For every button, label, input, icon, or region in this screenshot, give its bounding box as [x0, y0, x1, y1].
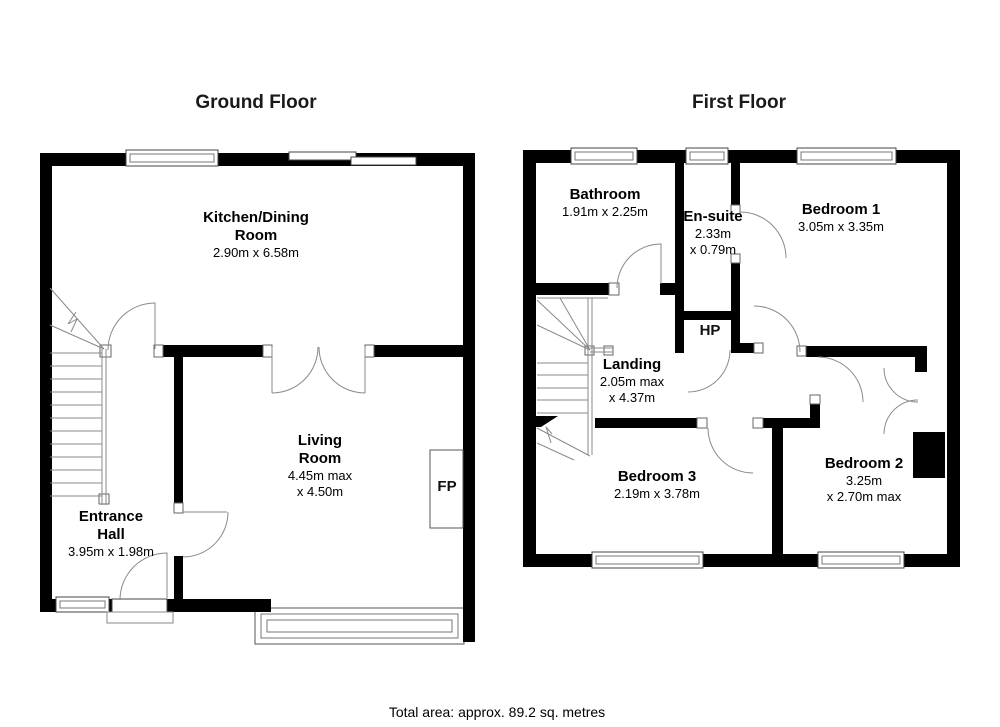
ff-jamb-bedroom2-door [810, 395, 820, 404]
hall-name-line2: Hall [68, 526, 154, 544]
ff-jamb-bedroom3-right [753, 418, 763, 428]
ff-stair-winders [537, 298, 590, 350]
ff-hp-door-arc [688, 350, 730, 392]
gf-french-door-right-arc [319, 347, 365, 393]
gf-hall-window [56, 597, 109, 612]
bathroom-label: Bathroom 1.91m x 2.25m [562, 186, 648, 220]
ff-chimney-breast [913, 432, 945, 478]
first-floor-title: First Floor [692, 92, 786, 114]
kitchen-name-line1: Kitchen/Dining [203, 209, 309, 227]
ff-wall-landing-bottom-east [763, 418, 817, 428]
fireplace-label: FP [437, 478, 456, 495]
hall-dims: 3.95m x 1.98m [68, 544, 154, 560]
ff-ensuite-window [686, 148, 728, 164]
living-dims-line1: 4.45m max [288, 468, 352, 484]
ff-stair-treads [537, 363, 588, 413]
ff-bedroom3-window [592, 552, 703, 568]
kitchen-label: Kitchen/Dining Room 2.90m x 6.58m [203, 209, 309, 261]
ff-jamb-bedroom1-right [797, 346, 806, 356]
ff-jamb-bedroom3-left [697, 418, 707, 428]
gf-front-door-arc [120, 553, 167, 600]
gf-kitchen-window [126, 150, 218, 166]
ff-bathroom-window [571, 148, 637, 164]
landing-dims-line2: x 4.37m [600, 390, 664, 406]
ff-wall-bedroom3-bedroom2 [772, 418, 783, 556]
bedroom2-dims-line2: x 2.70m max [825, 489, 903, 505]
bedroom3-label: Bedroom 3 2.19m x 3.78m [614, 468, 700, 502]
gf-patio-doors [255, 608, 464, 644]
ff-wall-ensuite-right-upper [731, 163, 740, 205]
ff-stairwell-wall-wedge [536, 416, 558, 427]
ff-bedroom2-door-arc [818, 357, 863, 402]
gf-outer-wall-right [463, 153, 475, 642]
gf-outer-wall-left [40, 153, 52, 612]
ff-wall-bathroom-bottom-stub [660, 283, 676, 295]
landing-label: Landing 2.05m max x 4.37m [600, 356, 664, 406]
gf-stair-treads [50, 353, 102, 496]
gf-top-window-left [289, 152, 356, 160]
gf-jamb-french-right [365, 345, 374, 357]
gf-hall-living-door-arc [183, 512, 228, 557]
ensuite-name: En-suite [683, 208, 742, 226]
ff-wall-ensuite-left [675, 163, 684, 353]
bedroom1-dims: 3.05m x 3.35m [798, 219, 884, 235]
ensuite-dims-line1: 2.33m [683, 226, 742, 242]
ff-closet-door-upper-arc [884, 368, 918, 402]
gf-top-window-right [351, 157, 416, 165]
floorplan-page: Ground Floor First Floor Kitchen/Dining … [0, 0, 1000, 727]
gf-patio-frame-outer [255, 608, 464, 644]
bedroom2-label: Bedroom 2 3.25m x 2.70m max [825, 455, 903, 505]
kitchen-dims: 2.90m x 6.58m [203, 245, 309, 261]
total-area-text: Total area: approx. 89.2 sq. metres [389, 704, 605, 720]
gf-stair-string [102, 349, 106, 505]
ff-jamb-stair-rail-right [604, 346, 613, 355]
ff-wall-bedroom1-left [740, 343, 754, 353]
ff-stair-string [588, 298, 592, 455]
entrance-hall-label: Entrance Hall 3.95m x 1.98m [68, 508, 154, 560]
gf-wall-kitchen-living-left [163, 345, 263, 357]
ff-wall-ensuite-bottom [675, 311, 740, 320]
ff-jamb-bedroom1-left [754, 343, 763, 353]
ff-jamb-stair-rail-left [585, 346, 594, 355]
ff-bedroom3-door-arc [708, 428, 753, 473]
gf-stair-break-line [68, 312, 77, 332]
bedroom1-name: Bedroom 1 [798, 201, 884, 219]
bedroom3-name: Bedroom 3 [614, 468, 700, 486]
ff-bathroom-door-arc [617, 244, 661, 288]
gf-jamb-french-left [263, 345, 272, 357]
gf-wall-hall-living-upper [174, 357, 183, 503]
ensuite-dims-line2: x 0.79m [683, 242, 742, 258]
gf-wall-kitchen-living-right [374, 345, 463, 357]
ensuite-label: En-suite 2.33m x 0.79m [683, 208, 742, 258]
bedroom1-label: Bedroom 1 3.05m x 3.35m [798, 201, 884, 235]
ff-bedroom2-window [818, 552, 904, 568]
ff-stair-break-diagonals [537, 428, 590, 460]
ff-wall-bathroom-bottom [536, 283, 609, 295]
gf-stairs [50, 288, 106, 505]
gf-french-door-left-arc [272, 347, 318, 393]
bathroom-dims: 1.91m x 2.25m [562, 204, 648, 220]
kitchen-name-line2: Room [203, 227, 309, 245]
hall-name-line1: Entrance [68, 508, 154, 526]
living-dims-line2: x 4.50m [288, 484, 352, 500]
gf-front-door-opening [112, 599, 167, 612]
ff-outer-wall-left [523, 150, 536, 567]
ff-wall-bedroom2-door-stub [810, 404, 820, 428]
living-name-line1: Living [288, 432, 352, 450]
bedroom2-dims-line1: 3.25m [825, 473, 903, 489]
bedroom3-dims: 2.19m x 3.78m [614, 486, 700, 502]
gf-porch-step [107, 612, 173, 623]
hot-press-label: HP [700, 322, 721, 339]
ff-closet-door-lower-arc [884, 400, 918, 434]
ff-wall-alcove-stub-top [915, 346, 927, 372]
floorplan-drawing [0, 0, 1000, 727]
ff-wall-landing-bottom [595, 418, 697, 428]
living-room-label: Living Room 4.45m max x 4.50m [288, 432, 352, 500]
bathroom-name: Bathroom [562, 186, 648, 204]
ff-doors [617, 212, 918, 473]
ff-wall-ensuite-right-lower [731, 263, 740, 353]
landing-dims-line1: 2.05m max [600, 374, 664, 390]
gf-jamb-hall-door [174, 503, 183, 513]
ff-ensuite-door-arc [740, 212, 786, 258]
living-name-line2: Room [288, 450, 352, 468]
gf-kitchen-door-arc [108, 303, 155, 350]
bedroom2-name: Bedroom 2 [825, 455, 903, 473]
landing-name: Landing [600, 356, 664, 374]
ground-floor-title: Ground Floor [195, 92, 316, 114]
gf-wall-hall-living-lower [174, 556, 183, 599]
ff-wall-landing-bedroom2-top [806, 346, 917, 357]
ff-bedroom1-window [797, 148, 896, 164]
ff-outer-wall-right [947, 150, 960, 567]
